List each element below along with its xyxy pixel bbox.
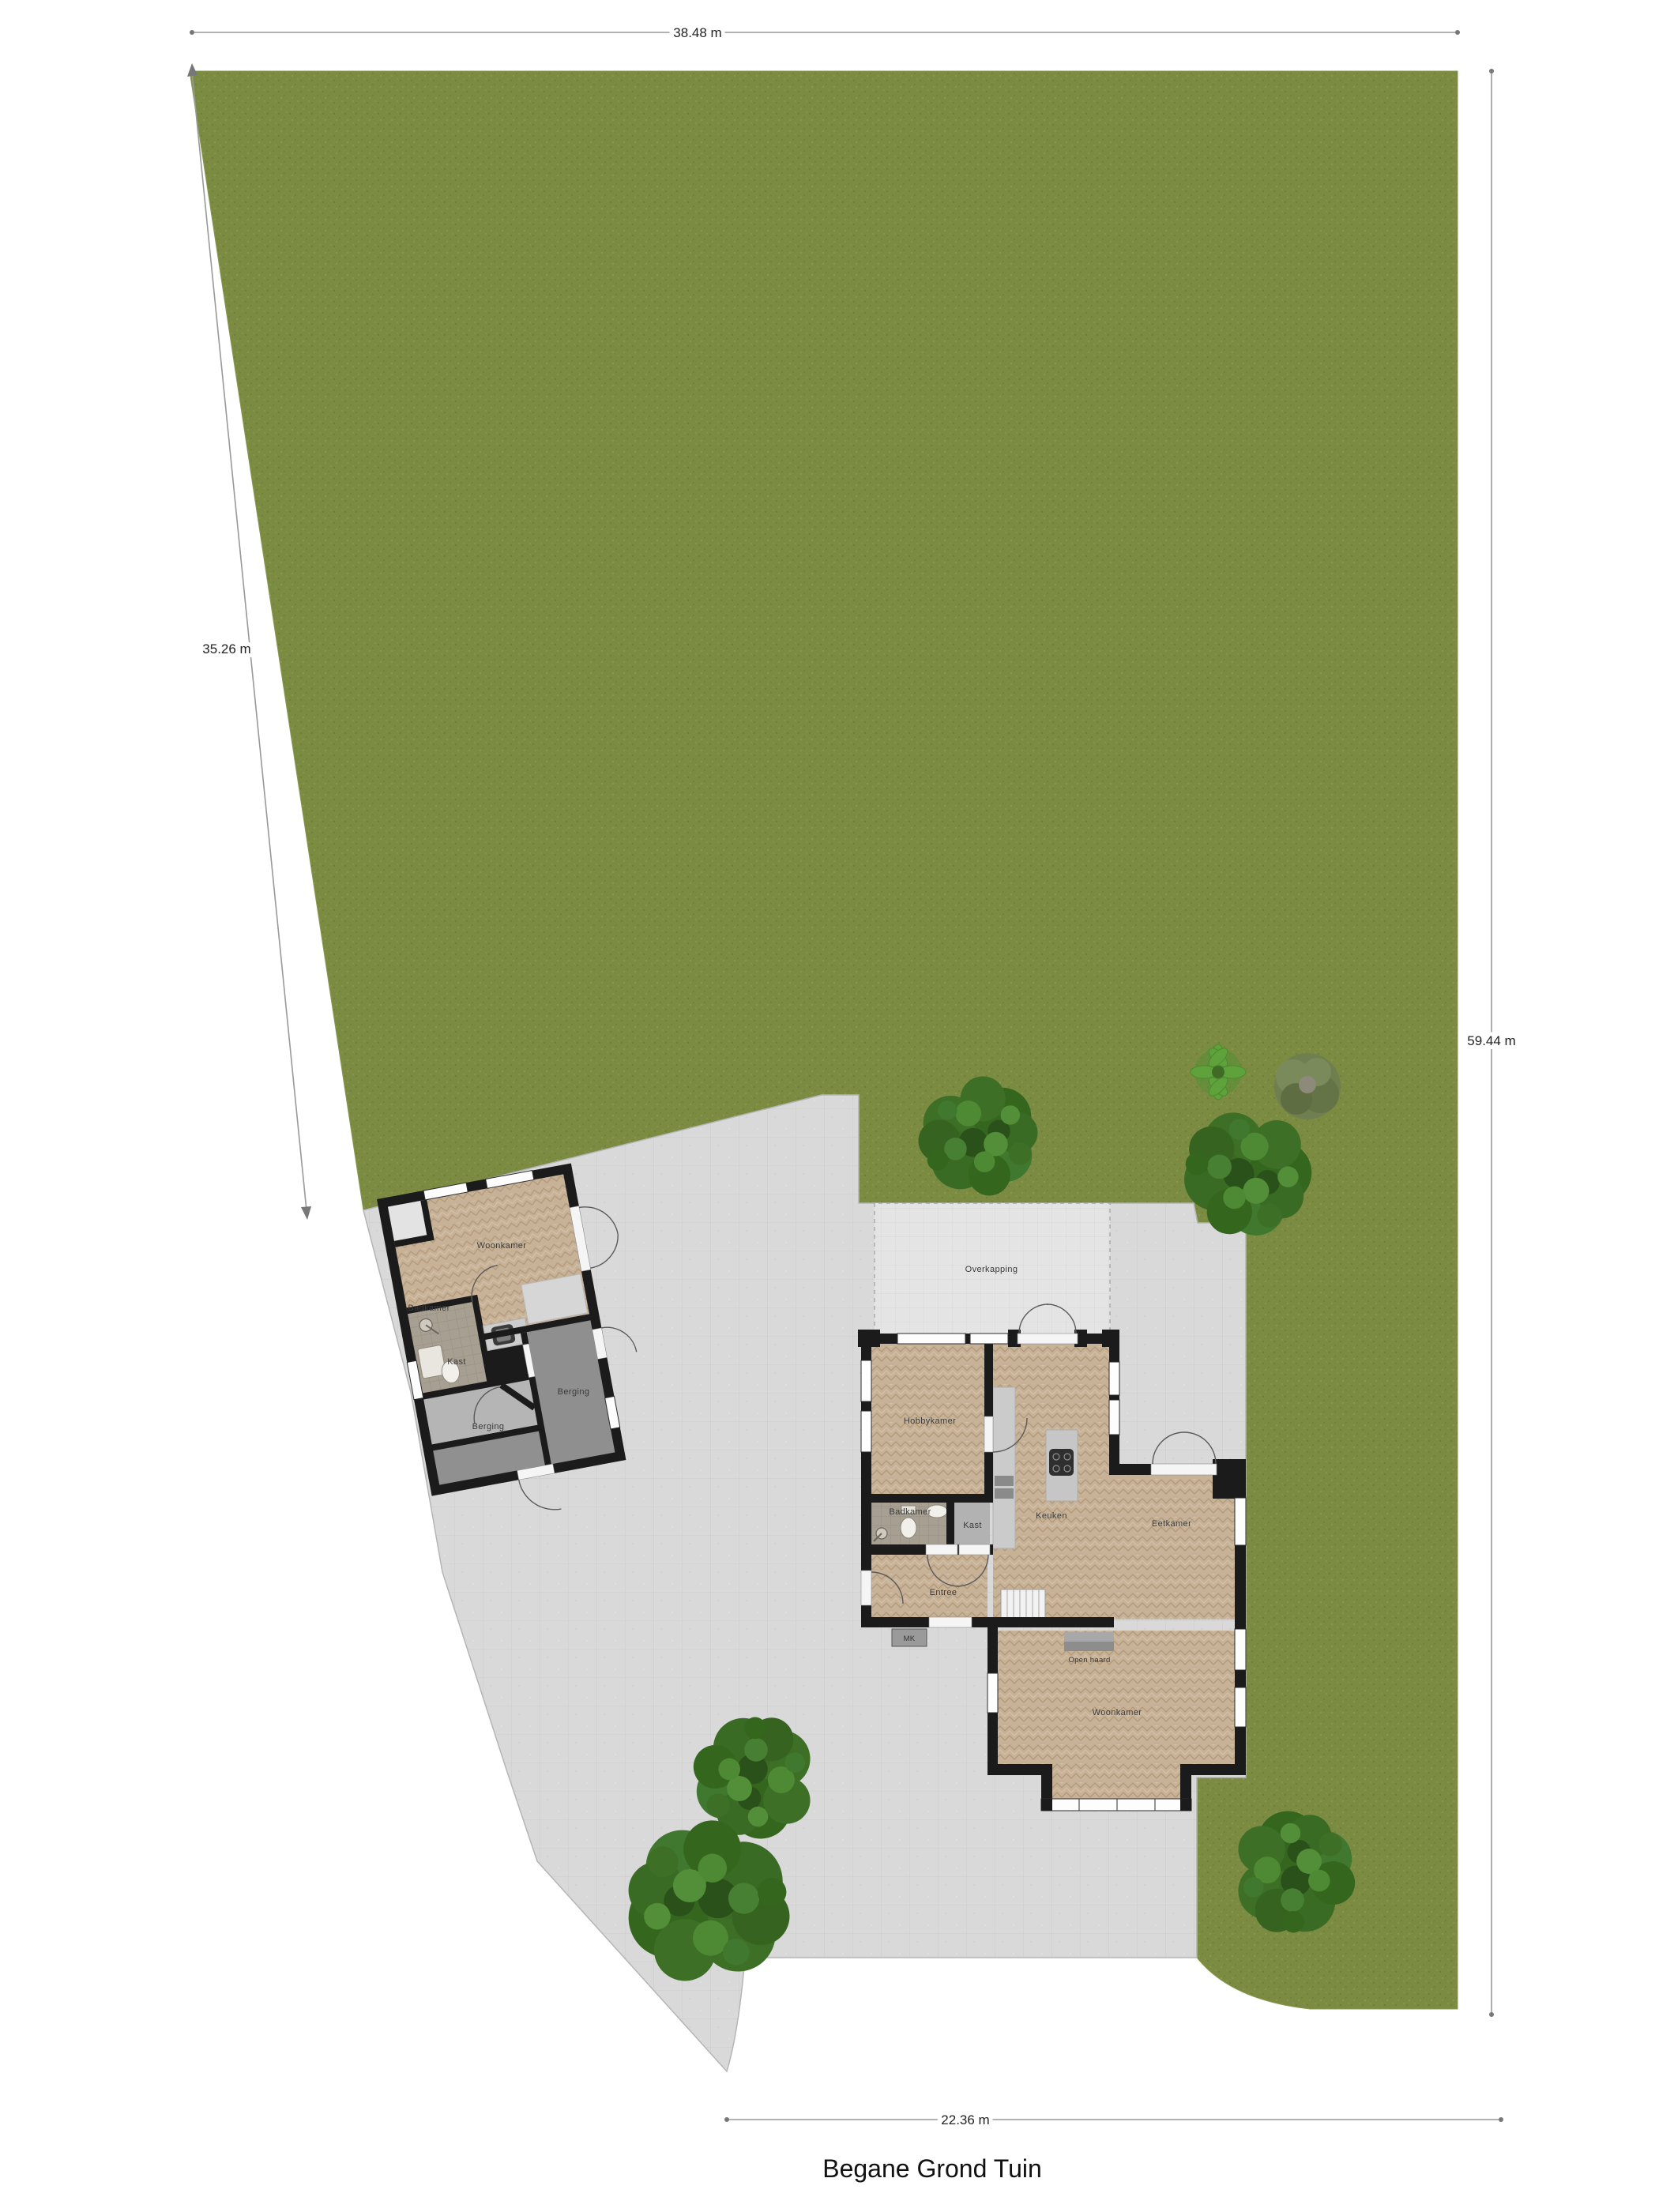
dimension-right: 59.44 m [1467,69,1515,2017]
page-title: Begane Grond Tuin [822,2154,1042,2183]
dimension-right-label: 59.44 m [1467,1033,1515,1048]
label-keuken: Keuken [1036,1511,1067,1521]
label-shed-badkamer: Badkamer [408,1303,450,1313]
stove-icon [1049,1449,1074,1476]
label-meterkast: MK [904,1635,916,1643]
label-house-kast: Kast [963,1521,982,1530]
label-shed-kast: Kast [447,1357,466,1367]
dimension-bottom-label: 22.36 m [941,2112,989,2127]
label-shed-berging-right: Berging [558,1387,590,1397]
appliance-icon [995,1488,1014,1499]
label-shed-woonkamer: Woonkamer [477,1241,527,1251]
label-overkapping: Overkapping [965,1265,1018,1274]
label-house-badkamer: Badkamer [889,1507,931,1517]
dimension-left-label: 35.26 m [202,641,250,656]
bay-floor [1052,1764,1180,1799]
label-house-woonkamer: Woonkamer [1093,1708,1142,1717]
bush-icon [1274,1053,1341,1119]
label-entree: Entree [930,1588,957,1597]
label-eetkamer: Eetkamer [1152,1519,1191,1529]
label-hobbykamer: Hobbykamer [904,1416,956,1426]
kitchen-counter [993,1387,1015,1548]
dimension-top: 38.48 m [190,25,1460,40]
toilet-icon [901,1518,916,1538]
dimension-top-label: 38.48 m [673,25,721,40]
appliance-icon [995,1476,1014,1486]
dimension-bottom: 22.36 m [724,2112,1503,2127]
label-open-haard: Open haard [1068,1656,1110,1665]
bay-window [1041,1799,1191,1811]
fireplace [1064,1632,1114,1642]
label-shed-berging-left: Berging [472,1422,505,1431]
floorplan-canvas: 38.48 m 35.26 m 59.44 m 22.36 m Overkapp… [0,0,1659,2212]
woonkamer-floor [998,1631,1235,1764]
floorplan-svg: 38.48 m 35.26 m 59.44 m 22.36 m Overkapp… [0,0,1659,2212]
